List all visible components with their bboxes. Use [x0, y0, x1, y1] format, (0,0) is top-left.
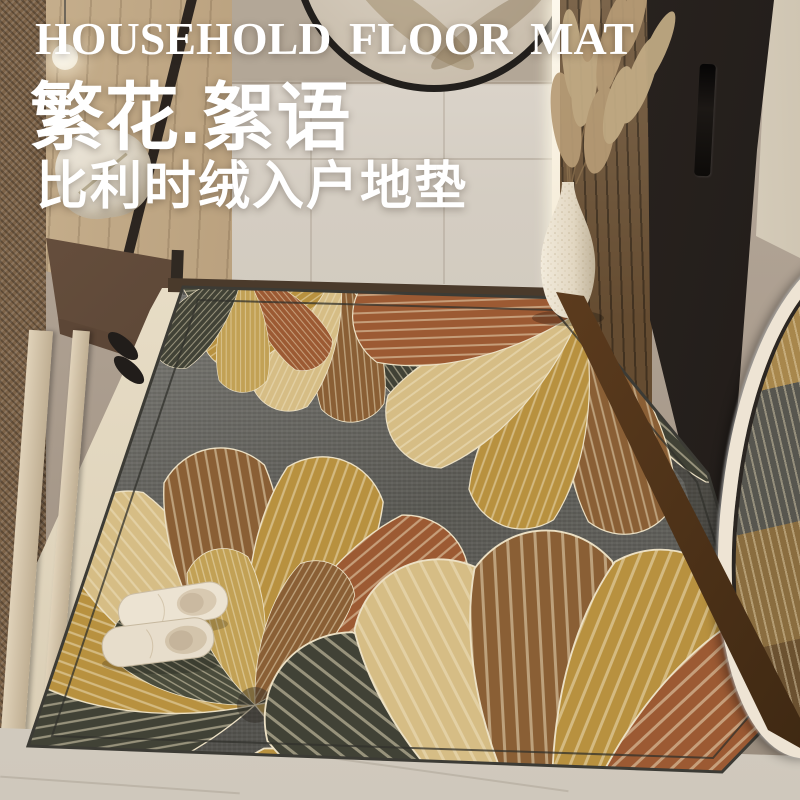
subtitle-chinese: 比利时绒入户地垫	[36, 144, 468, 219]
product-photo-entryway-floor-mat: HOUSEHOLD FLOOR MAT 繁花.絮语 比利时绒入户地垫	[0, 0, 800, 800]
